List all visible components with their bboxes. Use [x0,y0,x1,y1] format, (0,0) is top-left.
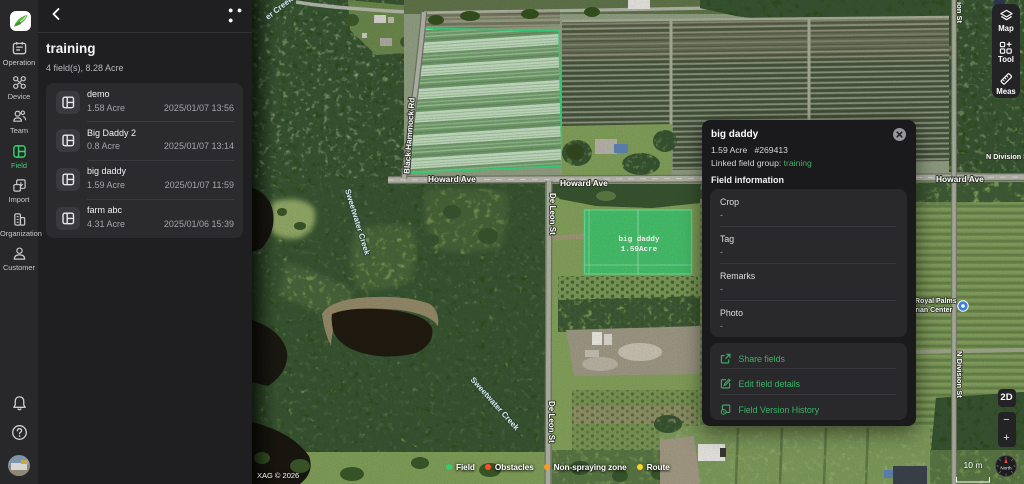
svg-text:Howard Ave: Howard Ave [936,174,984,184]
svg-text:North: North [1000,466,1012,471]
svg-text:ion St: ion St [955,2,964,24]
svg-text:N Division S: N Division S [986,152,1024,161]
svg-text:trian Center: trian Center [913,307,953,314]
svg-text:De Leon St: De Leon St [548,193,557,235]
svg-text:De Leon St: De Leon St [547,401,556,443]
svg-text:Howard Ave: Howard Ave [560,178,608,188]
svg-text:N Division St: N Division St [955,351,964,398]
svg-text:Royal Palms: Royal Palms [915,298,957,305]
svg-text:Howard Ave: Howard Ave [428,174,476,184]
